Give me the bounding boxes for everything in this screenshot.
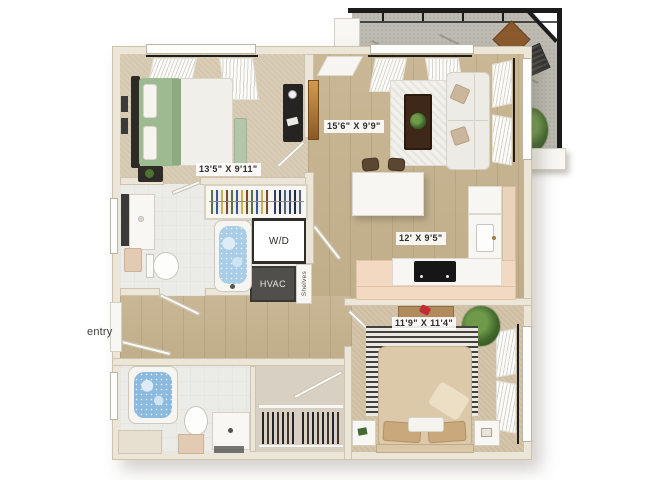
- closet-shoes: [262, 412, 296, 444]
- bed1-drape: [234, 118, 247, 166]
- washer-dryer-label: W/D: [269, 236, 289, 247]
- closet-shoes: [302, 412, 340, 444]
- bathroom2-window: [110, 372, 118, 420]
- wall-bath1-bottom-left: [120, 288, 160, 296]
- bar-stool: [361, 157, 379, 172]
- vanity2-faucet: [228, 428, 233, 433]
- laundry-basket: [124, 248, 142, 272]
- stove: [414, 261, 456, 282]
- closet-rod: [209, 201, 304, 202]
- bedroom2-dimensions-text: 11'9" X 11'4": [395, 318, 453, 328]
- wall-hall-bottom: [112, 358, 352, 366]
- entry-label: entry: [84, 326, 115, 339]
- washer-dryer-closet: W/D: [252, 218, 306, 264]
- balcony-frame-tick: [422, 8, 424, 21]
- kitchen-island: [352, 172, 424, 216]
- entry-text: entry: [87, 326, 112, 338]
- coffee-table-plant: [410, 113, 426, 129]
- closet-shelf: [258, 444, 344, 448]
- bedroom1-dimensions-text: 13'5" X 9'11": [199, 164, 258, 174]
- curtain-rod: [146, 55, 258, 57]
- bathtub2-water: [134, 372, 172, 418]
- sofa-seat-line: [448, 120, 488, 121]
- bedroom1-dimensions: 13'5" X 9'11": [196, 163, 261, 176]
- curtain-rod: [368, 55, 472, 57]
- kitchen-dimensions: 12' X 9'5": [396, 232, 446, 245]
- balcony-frame-tick: [462, 8, 464, 21]
- tub-faucet: [230, 284, 235, 289]
- desk-lamp: [288, 90, 297, 99]
- wall-bath2-closet-divider: [250, 366, 256, 452]
- bed2-center-pillow: [408, 417, 444, 432]
- hanging-clothes: [274, 190, 302, 214]
- bench-plant: [145, 169, 154, 178]
- toilet1-bowl: [153, 252, 179, 280]
- living-dimensions: 15'6" X 9'9": [324, 120, 384, 133]
- console-table: [308, 80, 319, 140]
- balcony-frame-tick: [502, 8, 504, 21]
- sink-faucet: [492, 236, 496, 240]
- sofa: [446, 72, 490, 170]
- wall-art: [121, 96, 128, 112]
- cabinet-band: [502, 186, 516, 262]
- nightstand-art: [481, 428, 492, 437]
- vanity-sink-dot: [138, 216, 144, 222]
- curtain-rod: [513, 58, 515, 162]
- living-dimensions-text: 15'6" X 9'9": [327, 121, 381, 131]
- bar-stool: [388, 157, 406, 171]
- curtain: [492, 114, 512, 166]
- bathroom1-mirror: [121, 194, 129, 246]
- bathtub1-water: [219, 226, 247, 284]
- wall-bed2-left: [344, 346, 352, 460]
- hanging-clothes: [211, 190, 269, 214]
- bed1-green-runner: [172, 79, 181, 165]
- balcony-frame-right: [557, 8, 562, 160]
- wall-art: [121, 118, 128, 134]
- living-window-right: [522, 58, 532, 160]
- kitchen-bar-front: [356, 286, 516, 300]
- bedroom1-window: [146, 44, 256, 54]
- bed1-pillow: [143, 126, 157, 160]
- living-window-top: [370, 44, 474, 54]
- bed2-headboard: [376, 444, 474, 453]
- balcony-frame-tick: [382, 8, 384, 21]
- floor-plan: W/D HVAC Shelves: [0, 0, 670, 480]
- balcony-frame-rail: [352, 21, 558, 23]
- stove-knob: [446, 275, 449, 278]
- bath2-mat: [214, 446, 244, 453]
- bathroom1-vanity: [129, 194, 155, 250]
- shelves-strip: Shelves: [296, 264, 312, 304]
- closet-shelf: [258, 404, 344, 409]
- bathroom1-window: [110, 198, 118, 254]
- hvac-label: HVAC: [260, 279, 286, 289]
- curtain: [492, 60, 512, 108]
- kitchen-dimensions-text: 12' X 9'5": [399, 233, 443, 243]
- curtain: [496, 328, 516, 378]
- toilet2-bowl: [184, 406, 208, 436]
- shelves-label: Shelves: [301, 271, 308, 296]
- stove-knob: [420, 275, 423, 278]
- bedroom2-window: [522, 326, 532, 442]
- sofa-seat-line: [474, 74, 475, 168]
- toilet2-step: [178, 434, 204, 454]
- bed1-pillow: [143, 84, 157, 118]
- bath2-bench: [118, 430, 162, 454]
- fridge: [468, 186, 502, 214]
- bedroom2-dimensions: 11'9" X 11'4": [392, 317, 456, 330]
- hvac-closet: HVAC: [250, 266, 296, 302]
- curtain-rod: [517, 324, 519, 444]
